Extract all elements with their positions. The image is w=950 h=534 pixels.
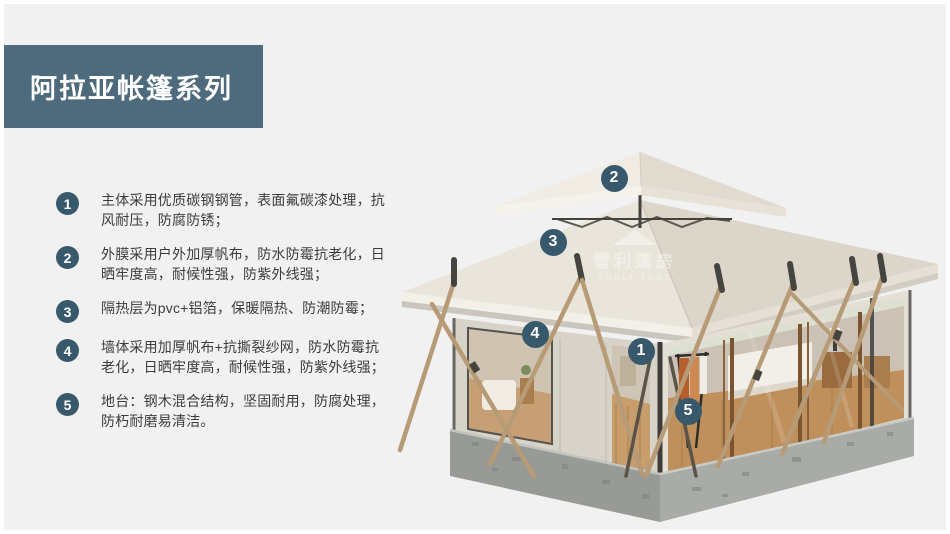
feature-text: 外膜采用户外加厚帆布，防水防霉抗老化，日晒牢度高，耐候性强，防紫外线强； [101, 244, 386, 284]
feature-number-badge: 4 [56, 339, 79, 362]
feature-item: 1 主体采用优质碳钢钢管，表面氟碳漆处理，抗风耐压，防腐防锈； [50, 190, 402, 230]
page-title-text: 阿拉亚帐篷系列 [30, 67, 233, 106]
tent-drawing [392, 142, 948, 530]
feature-list: 1 主体采用优质碳钢钢管，表面氟碳漆处理，抗风耐压，防腐防锈； 2 外膜采用户外… [50, 190, 402, 445]
image-callout-badge: 1 [628, 338, 655, 365]
tent-illustration: 雪利篷房 YUELI TENT 2 3 4 1 5 [392, 142, 948, 530]
feature-number-badge: 3 [56, 300, 79, 323]
feature-number-badge: 2 [56, 246, 79, 269]
image-callout-badge: 2 [601, 165, 628, 192]
image-callout-badge: 5 [675, 398, 702, 425]
feature-number-badge: 1 [56, 192, 79, 215]
feature-text: 隔热层为pvc+铝箔，保暖隔热、防潮防霉； [101, 298, 386, 318]
image-callout-badge: 3 [540, 229, 567, 256]
feature-item: 2 外膜采用户外加厚帆布，防水防霉抗老化，日晒牢度高，耐候性强，防紫外线强； [50, 244, 402, 284]
feature-number-badge: 5 [56, 393, 79, 416]
feature-item: 5 地台：钢木混合结构，坚固耐用，防腐处理，防朽耐磨易清洁。 [50, 391, 402, 431]
feature-text: 墙体采用加厚帆布+抗撕裂纱网，防水防霉抗老化，日晒牢度高，耐候性强，防紫外线强； [101, 337, 386, 377]
feature-text: 主体采用优质碳钢钢管，表面氟碳漆处理，抗风耐压，防腐防锈； [101, 190, 386, 230]
feature-item: 3 隔热层为pvc+铝箔，保暖隔热、防潮防霉； [50, 298, 402, 323]
feature-text: 地台：钢木混合结构，坚固耐用，防腐处理，防朽耐磨易清洁。 [101, 391, 386, 431]
image-callout-badge: 4 [522, 321, 549, 348]
feature-item: 4 墙体采用加厚帆布+抗撕裂纱网，防水防霉抗老化，日晒牢度高，耐候性强，防紫外线… [50, 337, 402, 377]
page-title: 阿拉亚帐篷系列 [0, 45, 263, 128]
